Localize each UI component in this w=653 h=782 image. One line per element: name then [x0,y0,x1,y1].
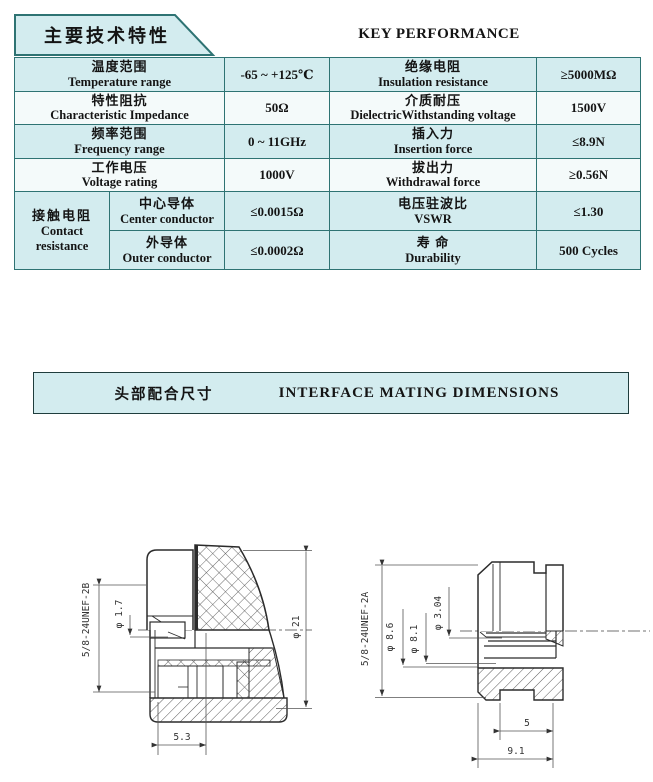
jack-thread-label: 5/8-24UNEF-2A [360,592,371,667]
param-zh: 绝缘电阻 [332,59,534,75]
param-value: 1500V [571,100,606,115]
spec-table-header: 主要技术特性 KEY PERFORMANCE [14,14,640,57]
param-zh: 工作电压 [17,160,222,176]
gasket-section [237,662,249,698]
param-zh: 外导体 [112,235,222,251]
param-zh: 寿 命 [332,235,534,251]
param-en: Voltage rating [17,175,222,190]
jack-body [478,562,563,631]
washer-section [158,660,270,666]
param-zh: 介质耐压 [332,93,534,109]
group-cell: 接触电阻 Contact resistance [15,192,110,270]
plug-drawing-svg: 5/8-24UNEF-2B φ 1.7 φ 21 5.3 [60,515,320,780]
table-row: 特性阻抗Characteristic Impedance 50Ω 介质耐压Die… [15,91,641,125]
contact-cavity [158,666,223,698]
jack-bottom-hatch [478,668,563,700]
spec-title-en: KEY PERFORMANCE [314,14,564,55]
plug-shell [147,550,193,630]
param-en: Durability [332,251,534,266]
plug-thread-label: 5/8-24UNEF-2B [81,583,92,658]
group-label-zh: 接触电阻 [17,208,107,224]
param-value: 1000V [259,167,294,182]
param-en: Outer conductor [112,251,222,266]
dia-a-label: φ 8.6 [385,622,396,651]
param-value: -65 ~ +125℃ [240,67,313,82]
param-value: 500 Cycles [559,243,618,258]
param-zh: 拔出力 [332,160,534,176]
group-label-en: resistance [17,239,107,254]
group-label-en: Contact [17,224,107,239]
table-row: 接触电阻 Contact resistance 中心导体Center condu… [15,192,641,231]
param-zh: 频率范围 [17,126,222,142]
dia-c-label: φ 3.04 [433,596,444,631]
datasheet-page: 主要技术特性 KEY PERFORMANCE 温度范围Temperature r… [0,0,653,782]
len-b-label: 9.1 [507,746,524,757]
interface-title-zh: 头部配合尺寸 [74,373,254,413]
param-zh: 电压驻波比 [332,196,534,212]
knurl-section [195,545,269,630]
param-en: Insulation resistance [332,75,534,90]
param-en: Insertion force [332,142,534,157]
spec-title-zh: 主要技术特性 [14,14,200,55]
param-en: Center conductor [112,212,222,227]
table-row: 频率范围Frequency range 0 ~ 11GHz 插入力Inserti… [15,125,641,159]
param-zh: 特性阻抗 [17,93,222,109]
param-zh: 温度范围 [17,59,222,75]
param-en: Temperature range [17,75,222,90]
table-row: 温度范围Temperature range -65 ~ +125℃ 绝缘电阻In… [15,58,641,92]
param-value: ≥5000MΩ [561,67,617,82]
table-row: 工作电压Voltage rating 1000V 拔出力Withdrawal f… [15,158,641,192]
param-zh: 中心导体 [112,196,222,212]
socket-chamfer [480,632,486,637]
body-bottom-hatch [150,698,287,722]
param-value: ≤0.0002Ω [250,243,303,258]
len-a-label: 5 [524,718,530,729]
param-en: VSWR [332,212,534,227]
nut-section-hatch [249,648,284,698]
param-en: Withdrawal force [332,175,534,190]
param-en: Frequency range [17,142,222,157]
param-en: Characteristic Impedance [17,108,222,123]
param-zh: 插入力 [332,126,534,142]
param-value: ≤0.0015Ω [250,204,303,219]
flange-wedge-hatch [546,631,563,646]
param-value: ≤8.9N [572,134,605,149]
param-value: ≤1.30 [574,204,604,219]
depth-label: 5.3 [173,732,190,743]
param-value: ≥0.56N [569,167,608,182]
key-performance-table: 温度范围Temperature range -65 ~ +125℃ 绝缘电阻In… [14,57,641,270]
param-value: 0 ~ 11GHz [248,134,306,149]
interface-title-en: INTERFACE MATING DIMENSIONS [254,373,584,413]
interface-section-bar: 头部配合尺寸 INTERFACE MATING DIMENSIONS [33,372,629,414]
pin-dia-label: φ 1.7 [114,600,125,629]
dia-b-label: φ 8.1 [409,624,420,653]
param-value: 50Ω [265,100,288,115]
jack-drawing-svg: 5/8-24UNEF-2A φ 8.6 φ 8.1 φ 3.04 5 9.1 [360,525,653,780]
outer-dia-label: φ 21 [291,615,302,638]
param-en: DielectricWithstanding voltage [332,108,534,123]
